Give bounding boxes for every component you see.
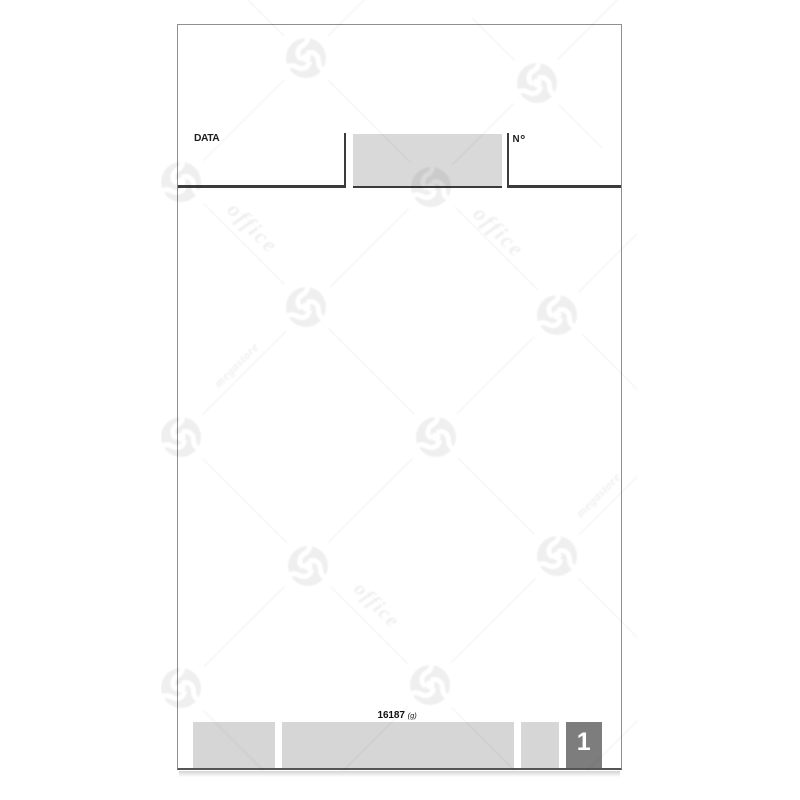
svg-text:office: office — [468, 201, 529, 262]
svg-text:megastore: megastore — [573, 470, 623, 520]
svg-text:office: office — [349, 578, 404, 633]
svg-text:office: office — [222, 197, 283, 258]
svg-text:megastore: megastore — [211, 340, 261, 390]
